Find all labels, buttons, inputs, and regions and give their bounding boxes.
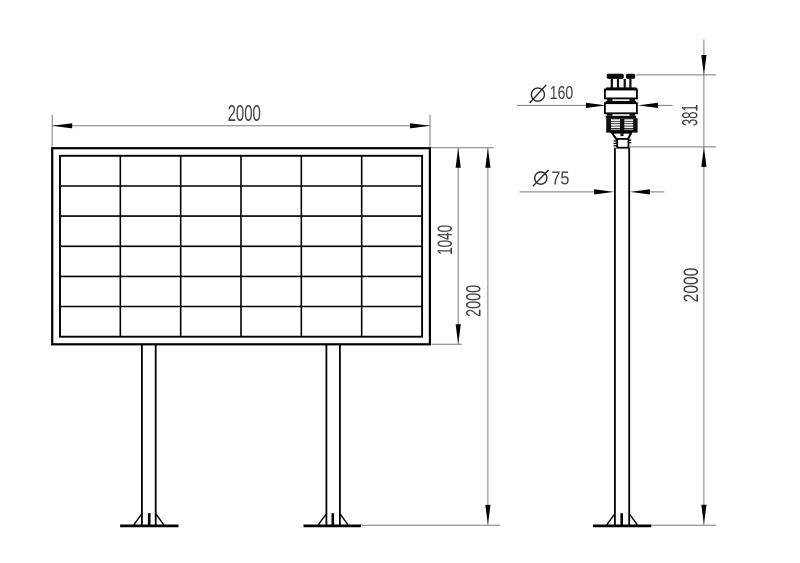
svg-text:2000: 2000 [228,100,261,126]
svg-text:381: 381 [677,104,702,126]
svg-text:1040: 1040 [433,225,457,255]
svg-text:2000: 2000 [462,285,486,317]
svg-text:2000: 2000 [679,268,703,303]
svg-text:75: 75 [551,168,569,189]
svg-text:160: 160 [550,82,573,103]
